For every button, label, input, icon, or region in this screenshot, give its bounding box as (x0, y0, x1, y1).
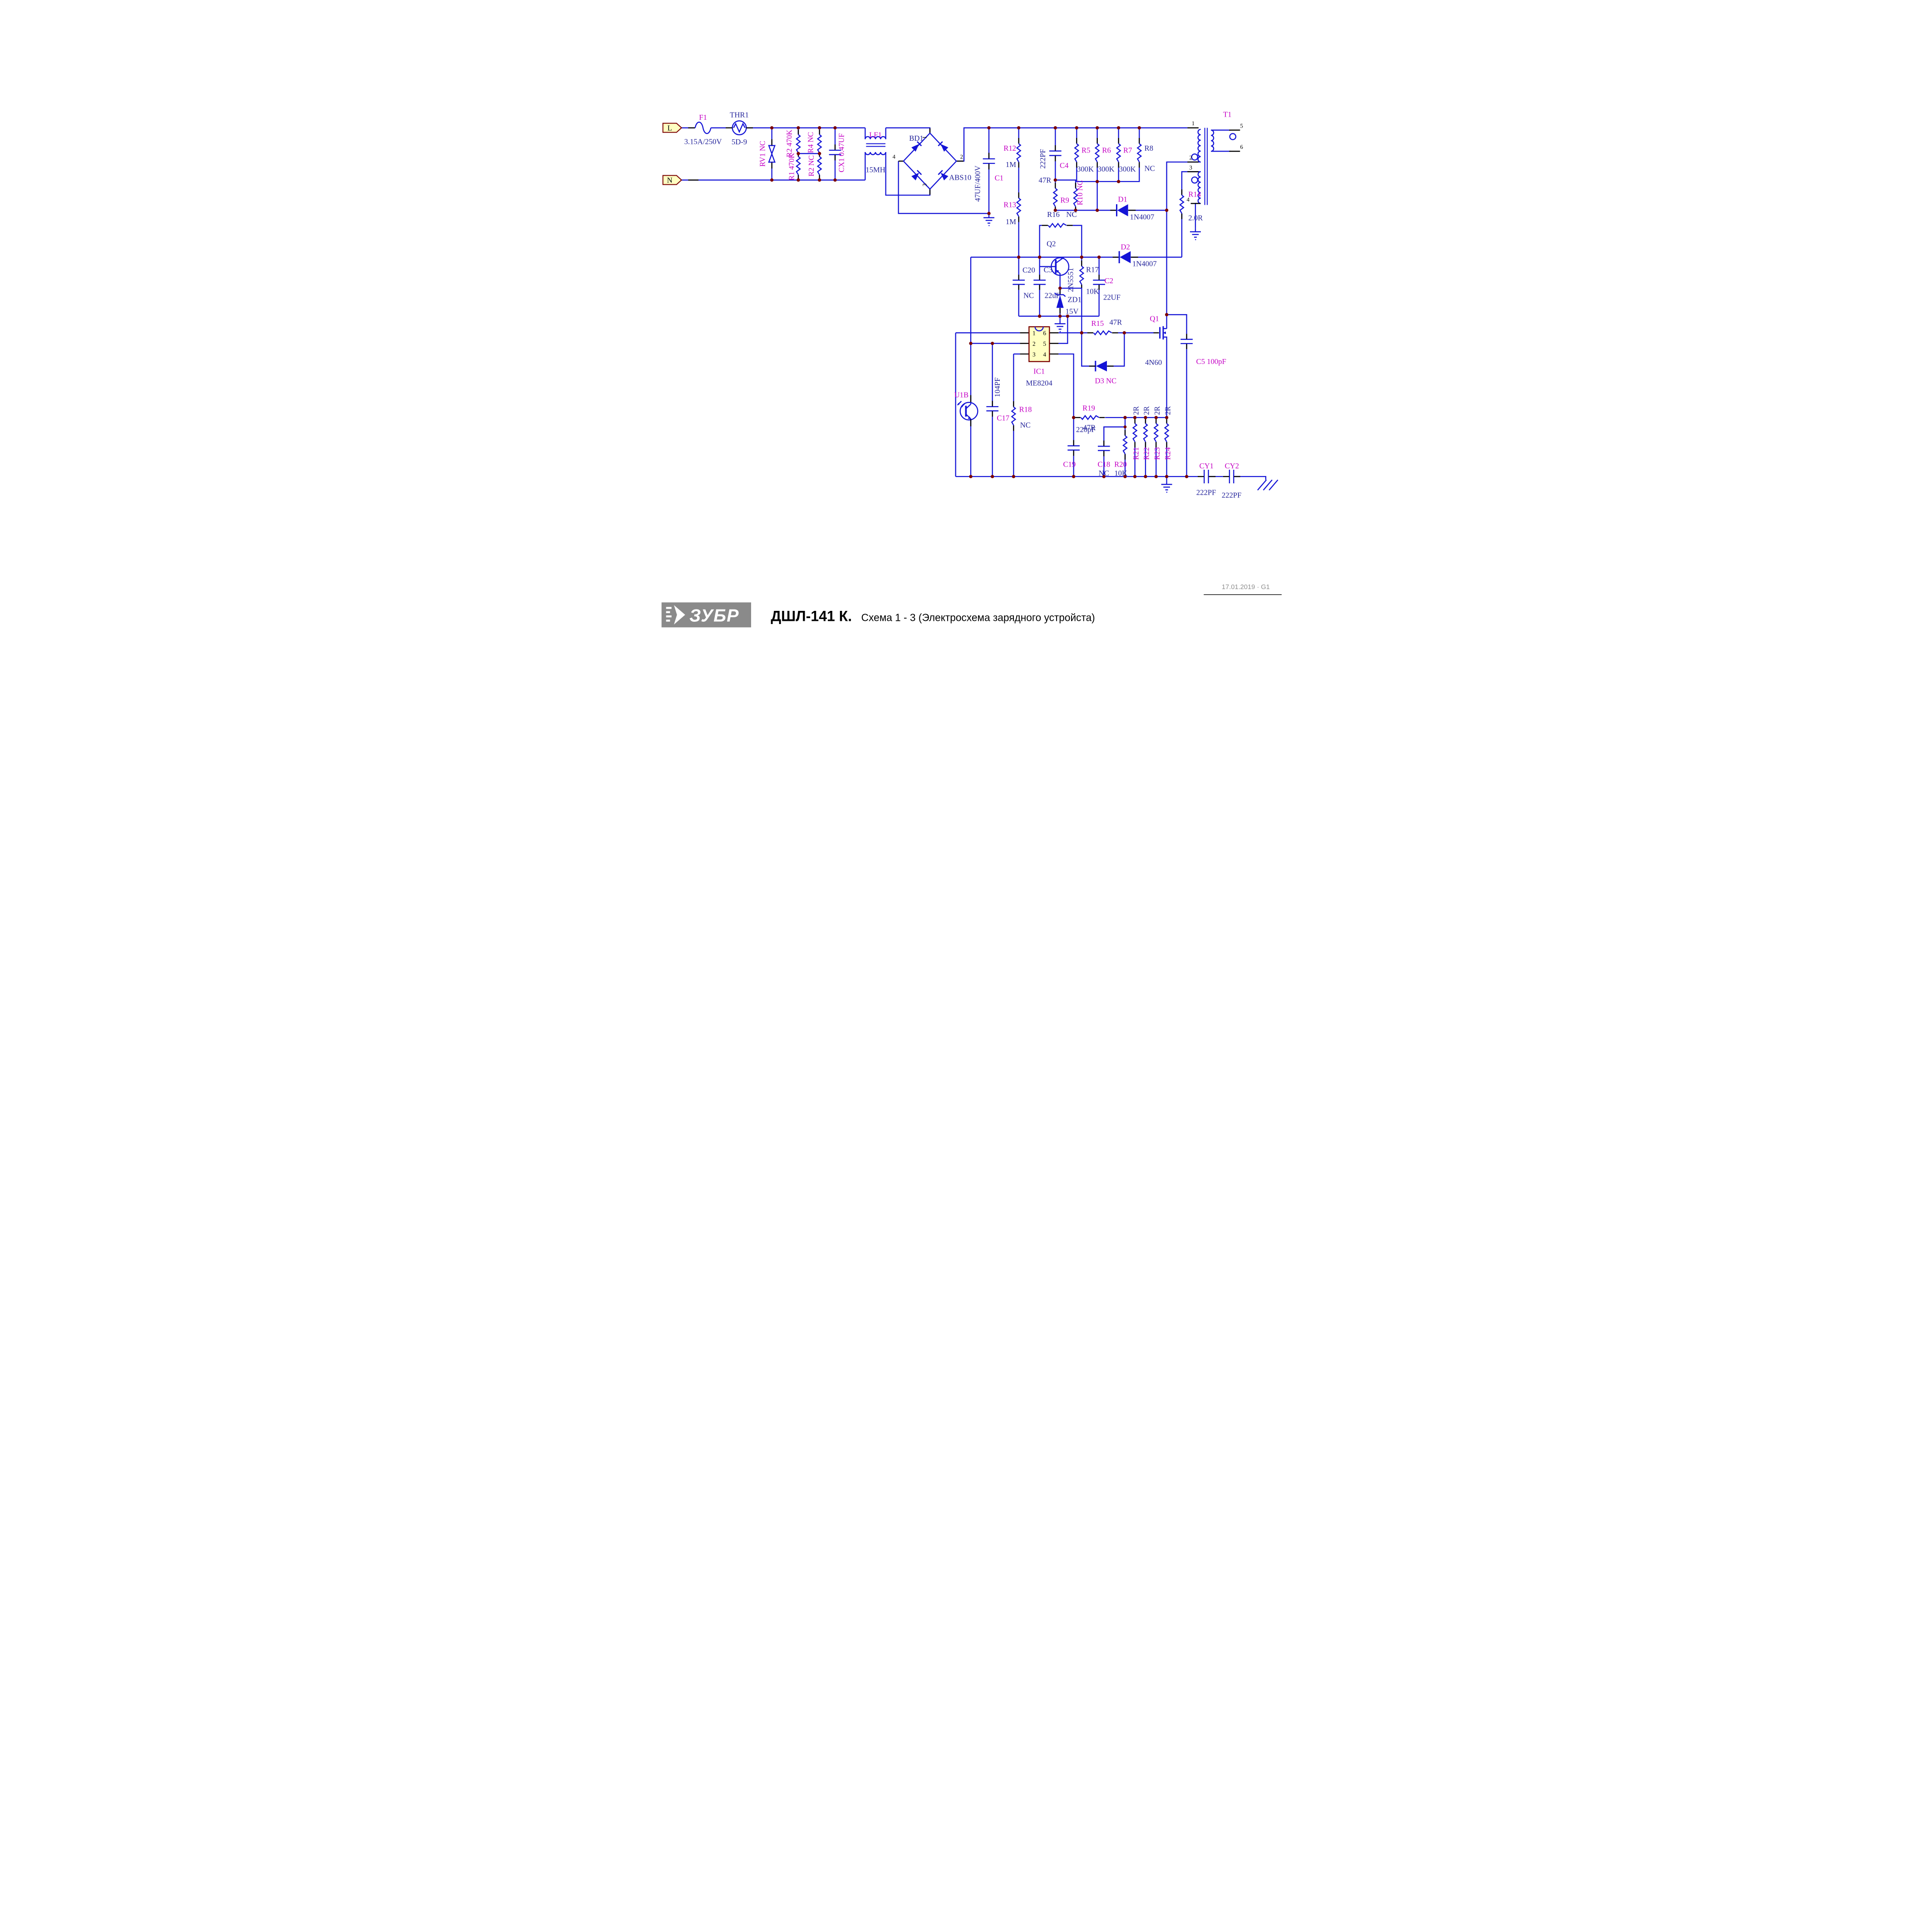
r12-ref: R12 (1003, 144, 1016, 152)
ic1-ref: IC1 (1033, 367, 1045, 375)
r5-value: 300K (1077, 165, 1094, 173)
brand-logo-text: ЗУБР (689, 605, 739, 625)
bd1-pin4: 4 (893, 153, 896, 160)
bd1-ref: BD1 (909, 134, 923, 143)
c3-value: 22uF (1045, 291, 1060, 300)
c3-ref: C3 (1044, 265, 1052, 274)
t1-aux-polarity-dot (1192, 177, 1198, 183)
ground-icon (1161, 481, 1172, 492)
ic1-pin2: 2 (1032, 340, 1036, 347)
footer: 17.01.2019 · G1 ЗУБР ДШЛ-141 К. Схема 1 … (662, 584, 1282, 627)
q2-value: 2N5551 (1066, 268, 1075, 292)
c18-ref: C18 (1097, 460, 1110, 469)
terminal-n-label: N (667, 176, 673, 185)
ic1-pin6: 6 (1043, 330, 1046, 337)
t1-secondary-winding (1211, 130, 1214, 152)
q1-value: 4N60 (1145, 358, 1162, 367)
r15-ref: R15 (1091, 319, 1104, 328)
t1-secondary-polarity-dot (1230, 133, 1236, 139)
r23-value: 2R (1153, 406, 1161, 415)
r2b-ref: R2 NC (807, 155, 816, 177)
ic1-pin5: 5 (1043, 340, 1046, 347)
ground-icon (1055, 320, 1066, 331)
cy1-ref: CY1 (1200, 462, 1214, 470)
terminal-l-flag (663, 123, 682, 133)
r17-value: 10K (1086, 287, 1099, 295)
c1-ref: C1 (995, 173, 1003, 182)
symbols-layer (695, 121, 1278, 492)
ic1-pin1: 1 (1032, 330, 1036, 337)
lf1-value: 15MH (865, 165, 885, 174)
r21-value: 2R (1131, 406, 1140, 415)
d1-diode-icon (1116, 204, 1128, 216)
page-subtitle: Схема 1 - 3 (Электросхема зарядного устр… (861, 612, 1095, 624)
r16-value: NC (1066, 210, 1077, 219)
r21-ref: R21 (1131, 447, 1140, 460)
r22-ref: R22 (1142, 447, 1151, 460)
bd1-pin2: 2 (960, 153, 963, 160)
q2-ref: Q2 (1047, 240, 1056, 248)
t1-primary-winding (1198, 129, 1201, 162)
ground-icon (983, 214, 994, 226)
r14-ref: R14 (1188, 190, 1201, 198)
r22-value: 2R (1142, 406, 1151, 415)
terminal-l-label: L (668, 124, 672, 133)
ic1-pin3: 3 (1032, 351, 1036, 358)
thr1-value: 5D-9 (732, 138, 747, 146)
bd1-pin1: 1 (922, 136, 928, 139)
ic1-body (1029, 327, 1049, 362)
cy1-cap-icon (1204, 470, 1208, 483)
page-title: ДШЛ-141 К. (771, 608, 852, 624)
r4-ref: R4 NC (806, 132, 815, 153)
ground-icon (1190, 228, 1201, 240)
t1-primary-polarity-dot (1192, 154, 1198, 160)
rv1-ref: RV1 NC (758, 141, 767, 167)
r23-ref: R23 (1153, 447, 1161, 460)
c20-value: NC (1023, 291, 1034, 300)
zd1-ref: ZD1 (1067, 295, 1082, 304)
c5-cap-icon (1180, 339, 1193, 344)
cy2-ref: CY2 (1225, 462, 1239, 470)
d2-ref: D2 (1121, 242, 1130, 251)
r10-ref: R10 NC (1076, 180, 1084, 205)
t1-pin2: 2 (1190, 154, 1192, 161)
r8-ref: R8 (1145, 144, 1153, 152)
c1-cap-icon (983, 159, 995, 163)
r6-ref: R6 (1102, 146, 1111, 155)
r24-ref: R24 (1163, 447, 1172, 460)
r1-ref: R1 470K (787, 153, 796, 181)
t1-ref: T1 (1223, 110, 1232, 118)
r14-value: 2.0R (1188, 213, 1203, 222)
d2-diode-icon (1119, 251, 1131, 263)
c20-cap-icon (1013, 280, 1025, 284)
c4-value: 222PF (1038, 149, 1047, 169)
r12-value: 1M (1006, 160, 1016, 169)
cy2-value: 222PF (1222, 491, 1242, 500)
revision-date: 17.01.2019 · G1 (1222, 584, 1270, 591)
d3-ref: D3 NC (1095, 377, 1116, 385)
t1-pin6: 6 (1240, 144, 1243, 150)
r6-value: 300K (1098, 165, 1115, 173)
d2-value: 1N4007 (1132, 260, 1157, 268)
r9-ref: R9 (1060, 196, 1069, 205)
c1-value: 47UF/400V (973, 166, 982, 202)
u1b-ref: U1B (954, 390, 968, 399)
f1-ref: F1 (699, 113, 707, 122)
c18-value: NC (1099, 469, 1109, 477)
cy2-cap-icon (1229, 470, 1234, 483)
c19-cap-icon (1067, 446, 1080, 450)
q1-ref: Q1 (1150, 314, 1159, 323)
c4-ref: C4 (1060, 161, 1069, 170)
lf1-ref: LF1 (869, 131, 882, 139)
c2-value: 22UF (1103, 293, 1121, 302)
r24-value: 2R (1163, 406, 1172, 415)
r7-ref: R7 (1123, 146, 1132, 155)
c20-ref: C20 (1023, 266, 1035, 275)
r15-value: 47R (1109, 318, 1122, 326)
ic1-pin4: 4 (1043, 351, 1046, 358)
labels-layer: L N F1 3.15A/250V THR1 5D-9 RV1 NC R2 47… (667, 110, 1243, 499)
r18-value: NC (1020, 421, 1031, 429)
t1-pin3: 3 (1190, 164, 1192, 171)
ic1-value: ME8204 (1026, 379, 1053, 387)
r5-ref: R5 (1082, 146, 1090, 155)
bd1-pin3: 3 (922, 183, 928, 186)
c3-cap-icon (1033, 280, 1046, 284)
c17-cap-icon (986, 407, 998, 411)
f1-value: 3.15A/250V (684, 137, 722, 146)
t1-pin5: 5 (1240, 123, 1243, 129)
c17-ref: C17 (997, 414, 1009, 423)
r20-value: 10K (1114, 469, 1127, 477)
c17-value: 104PF (993, 378, 1002, 398)
d3-diode-icon (1095, 361, 1107, 371)
zd1-value: 15V (1066, 307, 1079, 315)
c4-cap-icon (1049, 151, 1062, 156)
r9-value: 47R (1039, 176, 1052, 185)
chassis-ground-icon (1258, 480, 1278, 490)
r7-value: 300K (1119, 165, 1136, 173)
schematic-canvas: L N F1 3.15A/250V THR1 5D-9 RV1 NC R2 47… (644, 0, 1288, 644)
c19-ref: C19 (1063, 460, 1076, 469)
c18-cap-icon (1098, 446, 1110, 450)
r18-ref: R18 (1019, 405, 1032, 413)
d1-ref: D1 (1118, 195, 1127, 204)
c19-value: 220pF (1076, 425, 1096, 434)
t1-pin1: 1 (1192, 120, 1195, 127)
cy1-value: 222PF (1196, 488, 1216, 497)
r8-value: NC (1145, 164, 1155, 173)
r20-ref: R20 (1114, 460, 1127, 469)
t1-pin4: 4 (1187, 197, 1190, 203)
cx1-ref: CX1 0.47UF (837, 133, 846, 172)
c2-cap-icon (1093, 280, 1105, 284)
r17-ref: R17 (1086, 265, 1099, 274)
r13-ref: R13 (1003, 201, 1016, 209)
r19-ref: R19 (1082, 404, 1095, 413)
t1-aux-winding (1198, 172, 1201, 203)
d1-value: 1N4007 (1130, 212, 1155, 221)
c2-ref: C2 (1105, 276, 1113, 285)
r16-ref: R16 (1047, 210, 1060, 219)
r13-value: 1M (1006, 217, 1016, 226)
schematic-page: L N F1 3.15A/250V THR1 5D-9 RV1 NC R2 47… (644, 0, 1288, 644)
c5-ref: C5 100pF (1196, 357, 1226, 366)
fuse-icon (695, 122, 711, 133)
thr1-ref: THR1 (730, 110, 749, 119)
bd1-value: ABS10 (949, 173, 971, 182)
